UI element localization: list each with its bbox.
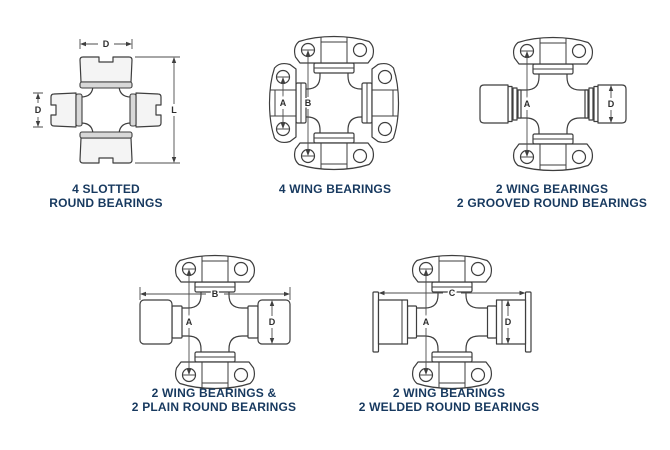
bolt-hole <box>573 45 586 58</box>
caption-line: 2 WING BEARINGS & <box>104 386 324 400</box>
dimension-letter: L <box>171 105 177 115</box>
caption-line: 2 GROOVED ROUND BEARINGS <box>442 196 662 210</box>
welded-round-bearing-left <box>373 292 417 352</box>
dimension-b: B <box>140 287 290 300</box>
bolt-hole <box>354 44 367 57</box>
caption-2-wing-2-welded: 2 WING BEARINGS 2 WELDED ROUND BEARINGS <box>339 386 559 414</box>
caption-4-slotted-round-bearings: 4 SLOTTED ROUND BEARINGS <box>6 182 206 210</box>
caption-line: 2 PLAIN ROUND BEARINGS <box>104 400 324 414</box>
diagram-2-wing-2-welded-round-bearings: C A D <box>357 240 547 405</box>
bearing-collar-left <box>76 94 82 126</box>
dimension-letter: D <box>103 39 110 49</box>
diagram-2-wing-2-grooved-round-bearings: A D <box>458 22 648 187</box>
bolt-hole <box>573 151 586 164</box>
grooved-round-bearing-right <box>585 85 626 123</box>
dimension-c: C <box>379 288 526 298</box>
dimension-letter: D <box>505 317 512 327</box>
caption-line: ROUND BEARINGS <box>6 196 206 210</box>
dimension-letter: A <box>423 317 430 327</box>
bolt-hole <box>472 263 485 276</box>
bolt-hole <box>379 71 392 84</box>
dimension-letter: D <box>269 317 276 327</box>
bolt-hole <box>379 123 392 136</box>
bearing-collar-bottom <box>80 132 132 138</box>
weld-flange <box>526 292 532 352</box>
dimension-letter: C <box>449 288 456 298</box>
weld-flange <box>373 292 379 352</box>
caption-2-wing-2-plain: 2 WING BEARINGS & 2 PLAIN ROUND BEARINGS <box>104 386 324 414</box>
dimension-d-top: D <box>80 39 132 49</box>
slotted-bearing-top <box>80 57 132 82</box>
dimension-letter: A <box>524 99 531 109</box>
caption-2-wing-2-grooved: 2 WING BEARINGS 2 GROOVED ROUND BEARINGS <box>442 182 662 210</box>
dimension-letter: A <box>280 98 287 108</box>
diagram-4-slotted-round-bearings: D D L <box>14 18 199 178</box>
bearing-types-chart: D D L 4 SLOTTED ROUND BEARINGS <box>0 0 670 450</box>
caption-line: 4 SLOTTED <box>6 182 206 196</box>
diagram-4-wing-bearings: A B <box>239 21 429 186</box>
bearing-collar-right <box>130 94 136 126</box>
dimension-letter: A <box>186 317 193 327</box>
caption-4-wing-bearings: 4 WING BEARINGS <box>235 182 435 196</box>
grooved-round-bearing-left <box>480 85 521 123</box>
slotted-bearing-right <box>136 93 161 127</box>
caption-line: 2 WING BEARINGS <box>339 386 559 400</box>
slotted-bearing-left <box>51 93 76 127</box>
bolt-hole <box>354 150 367 163</box>
slotted-bearing-bottom <box>80 138 132 163</box>
bolt-hole <box>235 263 248 276</box>
caption-line: 2 WING BEARINGS <box>442 182 662 196</box>
plain-round-bearing-left <box>140 300 182 344</box>
dimension-d-left: D <box>33 93 43 127</box>
dimension-letter: D <box>35 105 42 115</box>
caption-line: 4 WING BEARINGS <box>235 182 435 196</box>
dimension-letter: B <box>305 98 312 108</box>
diagram-2-wing-2-plain-round-bearings: B A D <box>120 240 310 405</box>
bearing-collar-top <box>80 82 132 88</box>
bolt-hole <box>472 369 485 382</box>
bolt-hole <box>235 369 248 382</box>
caption-line: 2 WELDED ROUND BEARINGS <box>339 400 559 414</box>
dimension-letter: D <box>608 99 615 109</box>
dimension-letter: B <box>212 289 219 299</box>
